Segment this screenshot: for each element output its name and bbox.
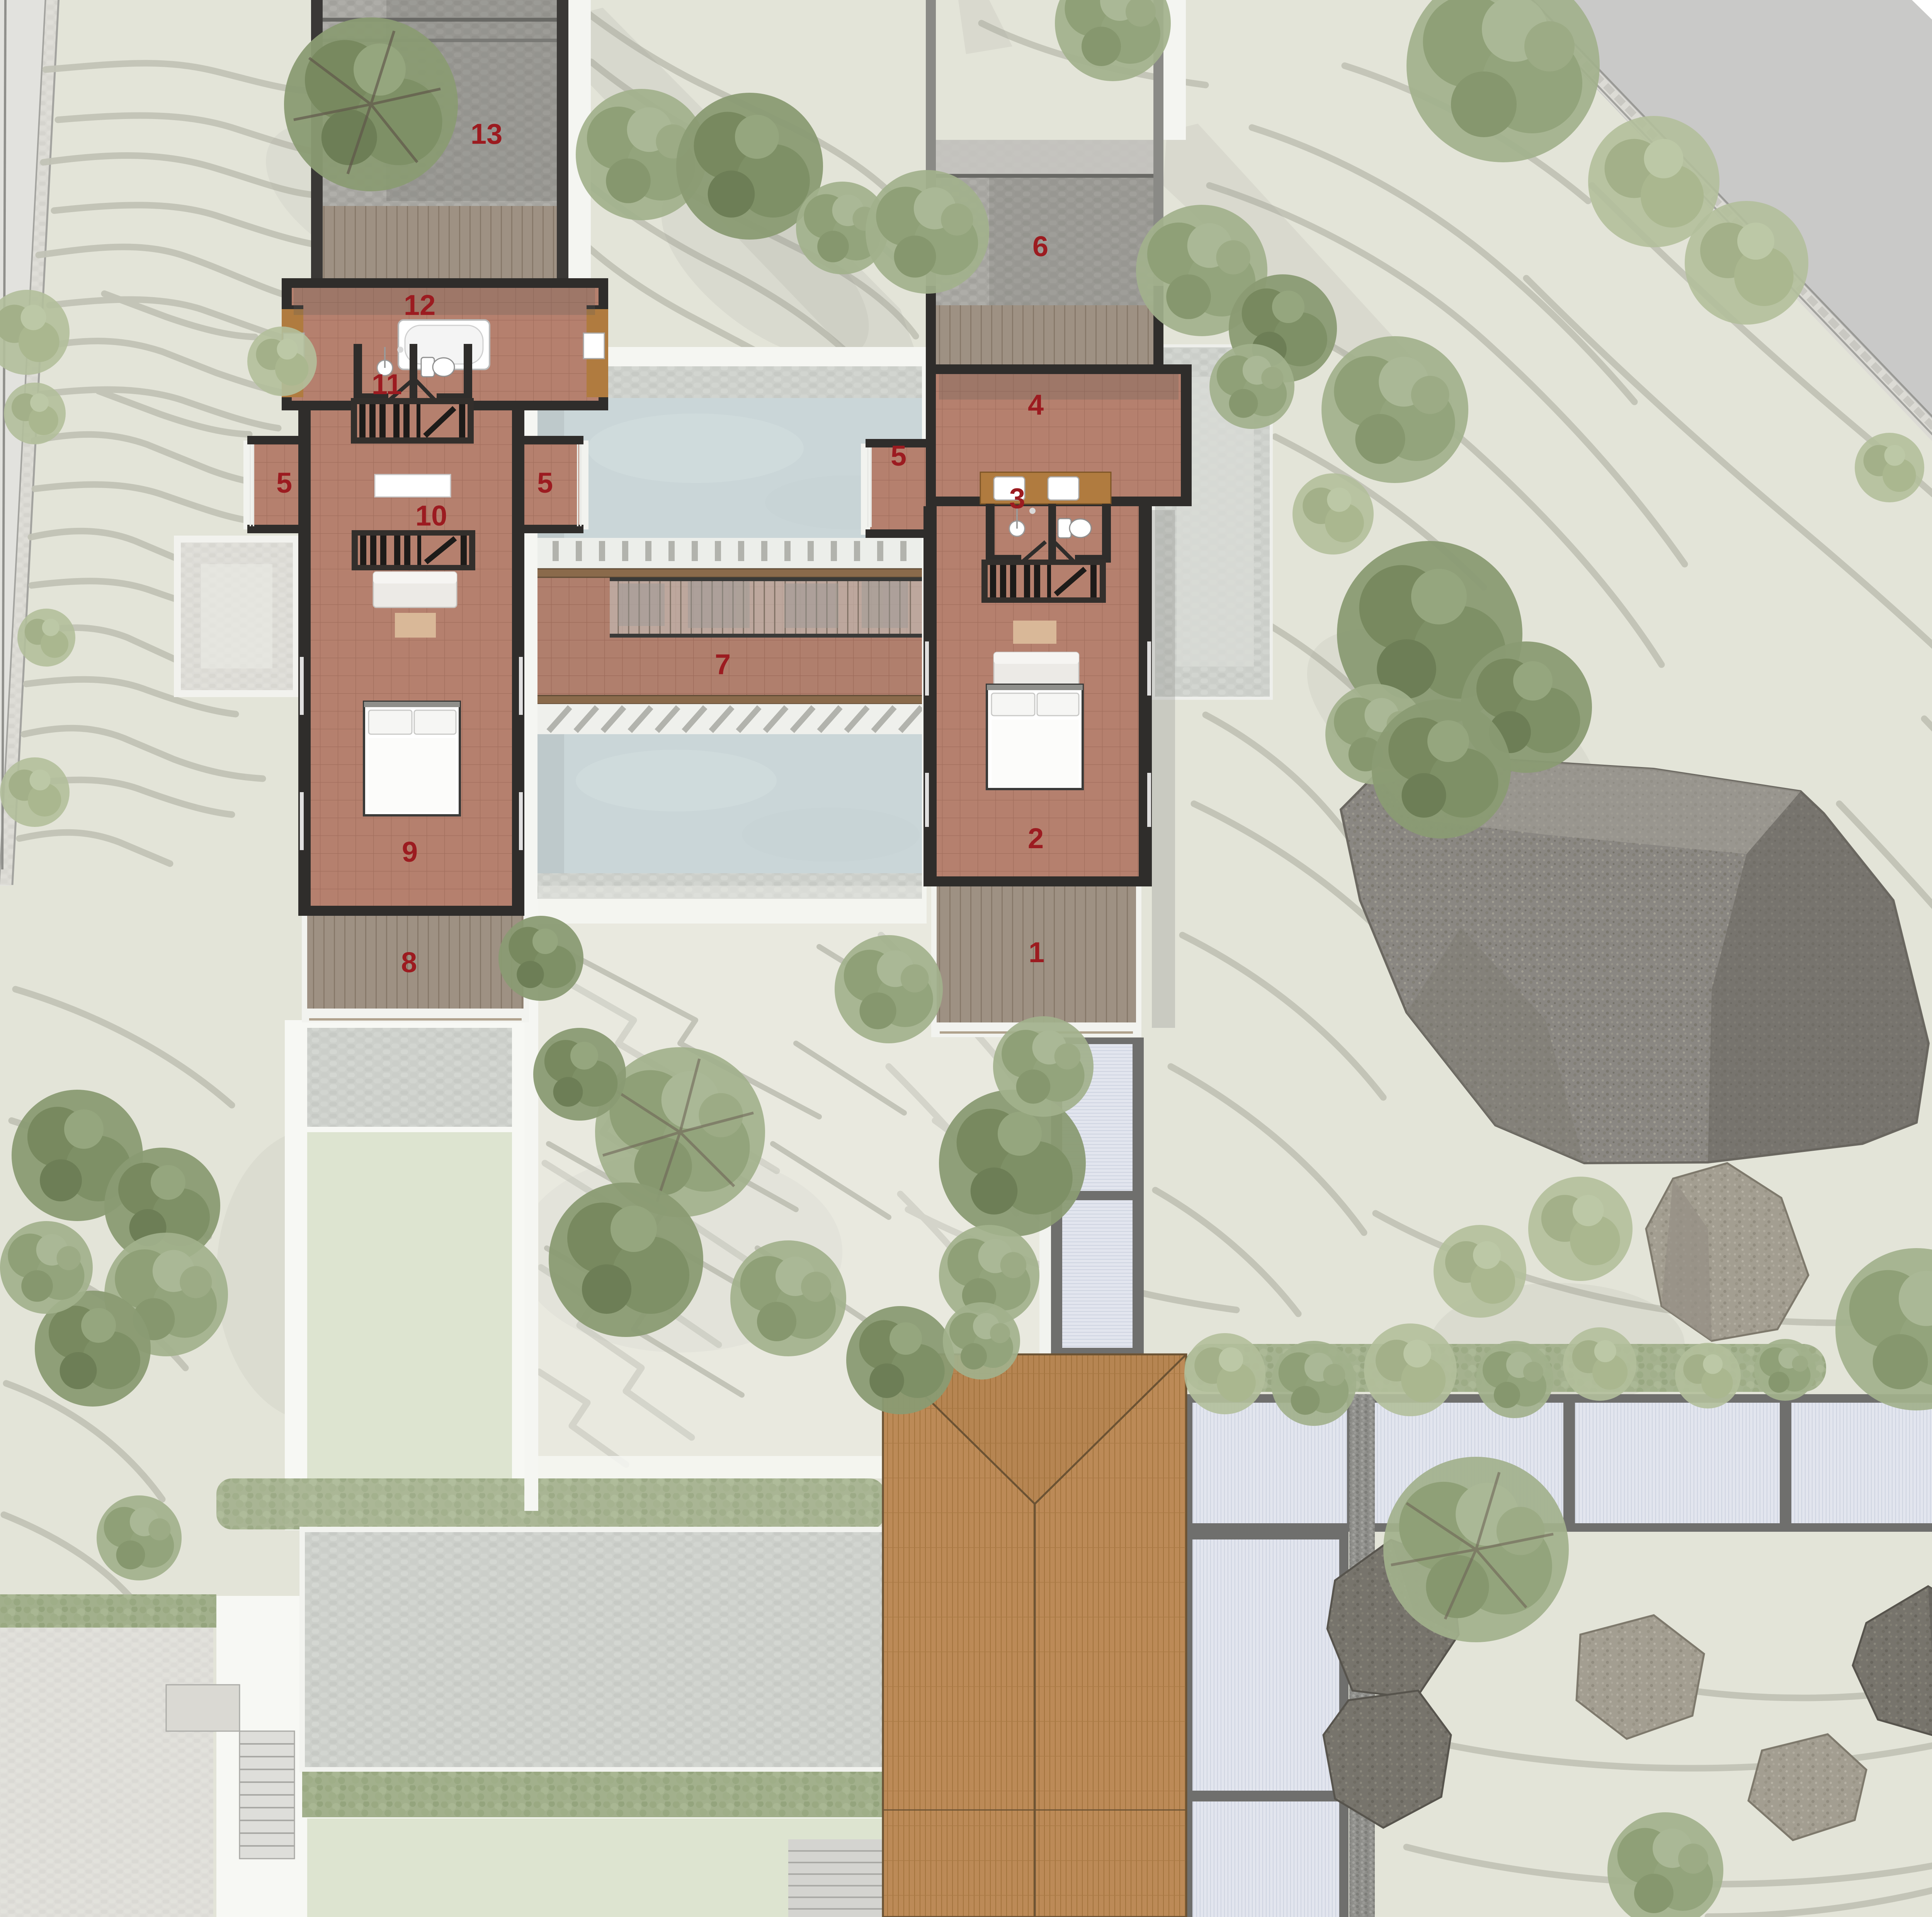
svg-text:8: 8 (401, 946, 417, 978)
svg-text:9: 9 (402, 836, 418, 868)
svg-text:11: 11 (372, 368, 402, 400)
svg-text:10: 10 (415, 500, 447, 532)
svg-text:2: 2 (1028, 822, 1044, 854)
svg-text:13: 13 (471, 118, 502, 150)
svg-text:3: 3 (1009, 482, 1025, 514)
svg-text:5: 5 (891, 440, 906, 472)
svg-text:12: 12 (404, 289, 435, 321)
svg-text:6: 6 (1032, 230, 1048, 262)
svg-text:4: 4 (1028, 389, 1044, 421)
svg-text:7: 7 (715, 648, 731, 680)
svg-text:5: 5 (537, 467, 553, 499)
svg-text:5: 5 (276, 467, 292, 499)
svg-text:1: 1 (1029, 936, 1044, 968)
